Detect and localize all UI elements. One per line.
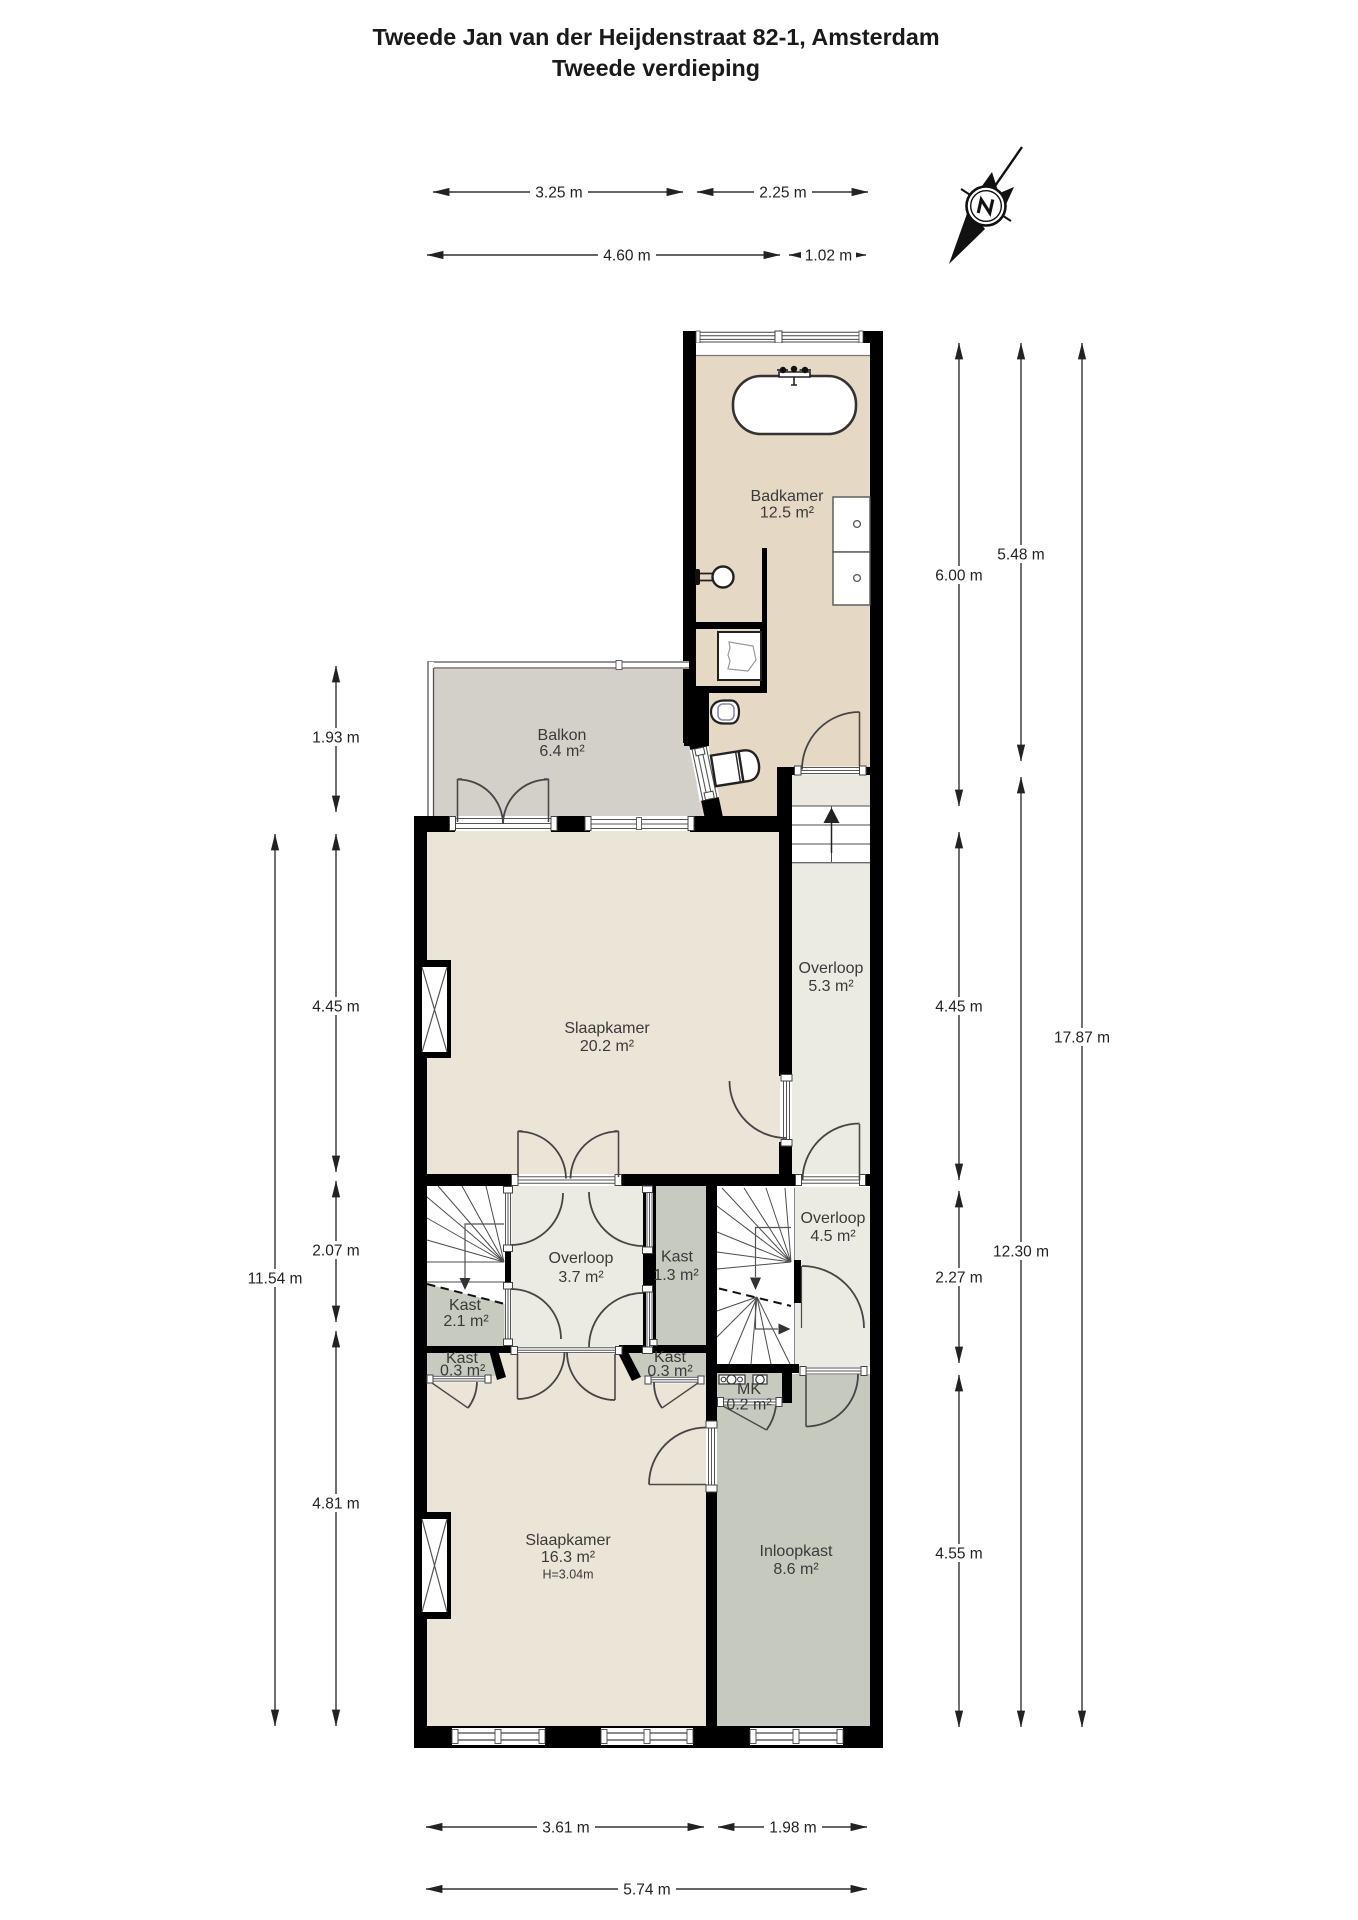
svg-text:11.54 m: 11.54 m (248, 1271, 303, 1288)
svg-text:6.00 m: 6.00 m (935, 568, 982, 585)
svg-text:4.5 m²: 4.5 m² (810, 1228, 856, 1245)
svg-text:3.7 m²: 3.7 m² (558, 1269, 604, 1286)
svg-text:0.2 m²: 0.2 m² (726, 1397, 772, 1414)
svg-text:Kast: Kast (661, 1249, 694, 1266)
svg-text:Kast: Kast (449, 1297, 482, 1314)
svg-text:5.3 m²: 5.3 m² (808, 978, 854, 995)
svg-text:17.87 m: 17.87 m (1054, 1030, 1110, 1047)
svg-text:Tweede verdieping: Tweede verdieping (552, 55, 760, 81)
svg-text:Inloopkast: Inloopkast (760, 1543, 833, 1560)
svg-text:4.45 m: 4.45 m (312, 999, 359, 1016)
svg-text:12.5 m²: 12.5 m² (760, 505, 815, 522)
svg-text:0.3 m²: 0.3 m² (440, 1363, 486, 1380)
svg-text:4.60 m: 4.60 m (603, 248, 650, 265)
svg-text:4.45 m: 4.45 m (935, 999, 982, 1016)
svg-text:12.30 m: 12.30 m (993, 1244, 1049, 1261)
svg-text:Overloop: Overloop (549, 1250, 614, 1267)
svg-text:6.4 m²: 6.4 m² (539, 743, 585, 760)
svg-text:4.55 m: 4.55 m (935, 1546, 982, 1563)
svg-text:Slaapkamer: Slaapkamer (564, 1020, 650, 1037)
svg-text:Balkon: Balkon (538, 727, 587, 744)
svg-text:1.98 m: 1.98 m (769, 1820, 816, 1837)
svg-text:20.2 m²: 20.2 m² (580, 1038, 635, 1055)
svg-text:2.25 m: 2.25 m (759, 185, 806, 202)
svg-text:1.02 m: 1.02 m (805, 248, 852, 265)
svg-text:MK: MK (737, 1381, 761, 1398)
svg-text:0.3 m²: 0.3 m² (647, 1363, 693, 1380)
svg-text:Overloop: Overloop (799, 960, 864, 977)
svg-text:Overloop: Overloop (801, 1210, 866, 1227)
svg-text:1.93 m: 1.93 m (312, 730, 359, 747)
svg-text:2.1 m²: 2.1 m² (443, 1313, 489, 1330)
svg-text:5.74 m: 5.74 m (623, 1882, 670, 1899)
svg-text:Slaapkamer: Slaapkamer (525, 1532, 611, 1549)
svg-text:8.6 m²: 8.6 m² (773, 1561, 819, 1578)
svg-text:5.48 m: 5.48 m (997, 547, 1044, 564)
svg-text:2.27 m: 2.27 m (935, 1270, 982, 1287)
svg-text:16.3 m²: 16.3 m² (541, 1549, 596, 1566)
svg-text:4.81 m: 4.81 m (312, 1496, 359, 1513)
svg-text:2.07 m: 2.07 m (312, 1243, 359, 1260)
svg-text:Badkamer: Badkamer (751, 488, 825, 505)
svg-text:3.25 m: 3.25 m (535, 185, 582, 202)
svg-text:1.3 m²: 1.3 m² (653, 1267, 699, 1284)
svg-text:H=3.04m: H=3.04m (542, 1568, 593, 1582)
svg-text:Tweede Jan van der Heijdenstra: Tweede Jan van der Heijdenstraat 82-1, A… (372, 24, 939, 50)
svg-text:3.61 m: 3.61 m (542, 1820, 589, 1837)
